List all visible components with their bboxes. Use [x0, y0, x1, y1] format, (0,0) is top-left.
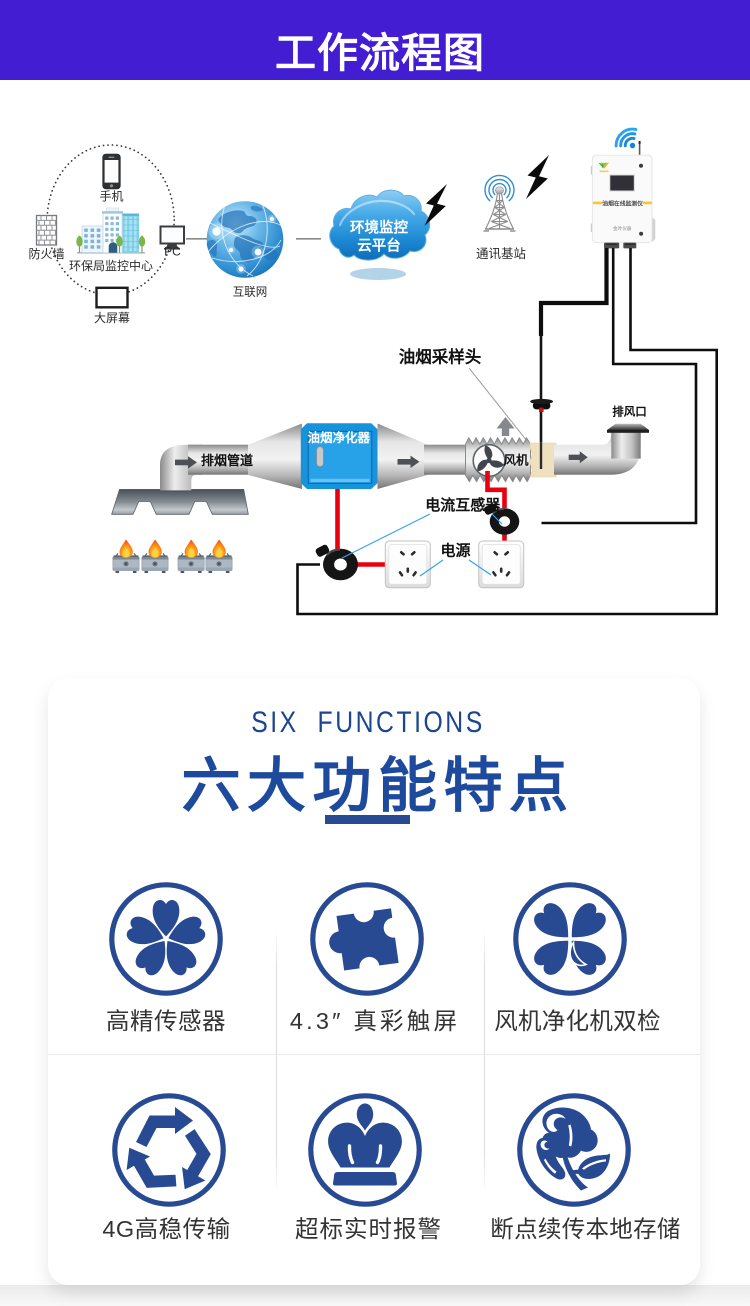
svg-text:电源: 电源	[440, 542, 470, 560]
svg-text:通讯基站: 通讯基站	[476, 247, 526, 261]
svg-text:油烟采样头: 油烟采样头	[399, 347, 482, 367]
svg-text:云平台: 云平台	[357, 237, 401, 255]
svg-text:排烟管道: 排烟管道	[201, 453, 253, 468]
svg-text:电流互感器: 电流互感器	[425, 496, 501, 514]
svg-text:油烟在线监测仪: 油烟在线监测仪	[602, 199, 643, 207]
svg-text:环境监控: 环境监控	[350, 219, 408, 237]
svg-text:排风口: 排风口	[612, 405, 647, 419]
svg-text:PC: PC	[164, 245, 181, 259]
svg-text:大屏幕: 大屏幕	[94, 311, 130, 325]
svg-text:环保局监控中心: 环保局监控中心	[69, 258, 153, 273]
svg-text:防火墙: 防火墙	[28, 246, 64, 261]
svg-text:金叶仪器: 金叶仪器	[613, 225, 632, 232]
svg-text:风机: 风机	[504, 453, 530, 468]
svg-text:互联网: 互联网	[233, 285, 268, 299]
svg-text:油烟净化器: 油烟净化器	[308, 430, 371, 445]
svg-text:手机: 手机	[99, 190, 123, 204]
